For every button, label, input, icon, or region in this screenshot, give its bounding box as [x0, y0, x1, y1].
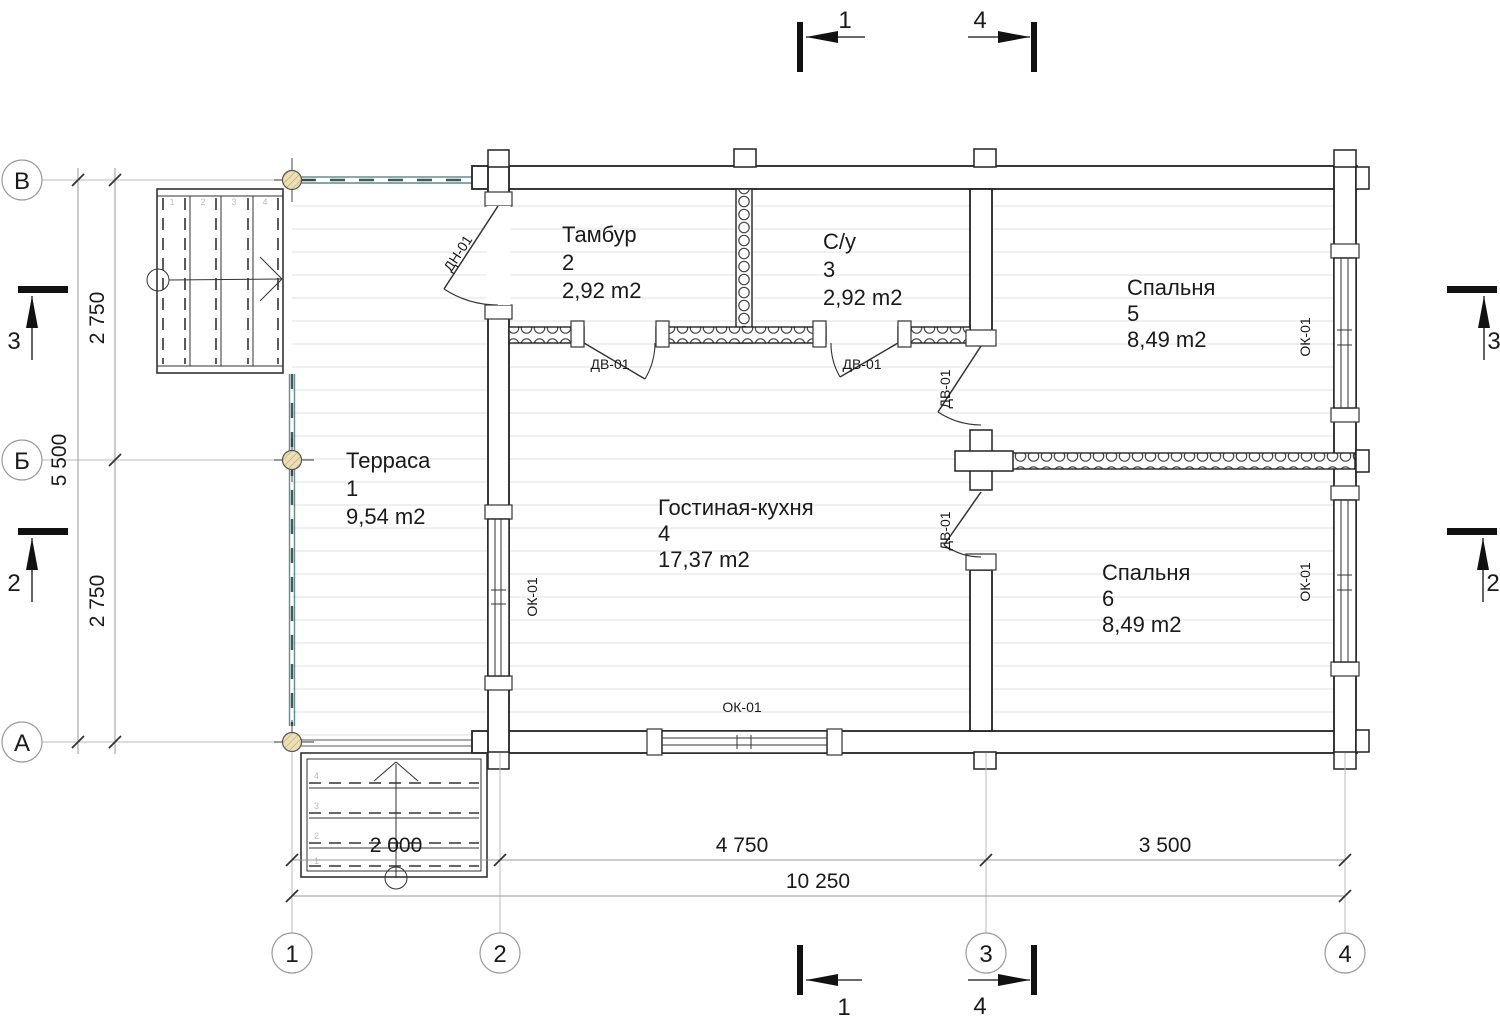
room-area: 8,49 m2: [1102, 612, 1182, 637]
window-terrace: [485, 505, 512, 690]
room-area: 8,49 m2: [1127, 327, 1207, 352]
dim-label: 4 750: [716, 834, 769, 857]
stairs-upper: 1 2 3 4: [147, 189, 283, 373]
section-marker-top-1: 1: [797, 7, 865, 72]
dimensions-left: 5 500 2 750 2 750: [48, 168, 121, 754]
floor-plan-drawing: 1 2 3 4 4 3 2 1: [0, 0, 1500, 1025]
axis-label-1: 1: [285, 941, 298, 968]
room-area: 2,92 m2: [562, 278, 642, 303]
stair-step-number: 3: [231, 197, 236, 207]
stair-step-number: 4: [314, 771, 319, 781]
room-area: 17,37 m2: [658, 547, 750, 572]
stair-step-number: 4: [262, 197, 267, 207]
window-tag: ОК-01: [722, 699, 761, 715]
dim-label: 2 750: [86, 292, 109, 345]
axis-label-4: 4: [1338, 941, 1351, 968]
partition-bedrooms: [1011, 453, 1355, 469]
room-number: 5: [1127, 301, 1139, 326]
section-label: 4: [973, 7, 986, 34]
wall-bottom: [472, 731, 1357, 753]
stair-step-number: 3: [314, 801, 319, 811]
entry-door-opening: [487, 206, 511, 305]
stair-step-number: 1: [314, 856, 319, 866]
window-tag: ОК-01: [524, 577, 540, 616]
room-name: Гостиная-кухня: [658, 495, 814, 520]
floor-plan-canvas: 1 2 3 4 4 3 2 1: [0, 0, 1500, 1025]
room-name: Тамбур: [562, 222, 637, 247]
section-label: 3: [1487, 328, 1500, 355]
section-marker-right-3: 3: [1447, 286, 1500, 360]
partition-hall-2: [656, 327, 826, 343]
door-tag: ДВ-01: [842, 356, 881, 372]
axis-label-3: 3: [979, 941, 992, 968]
section-marker-left-2: 2: [7, 528, 68, 602]
room-area: 2,92 m2: [823, 285, 903, 310]
dim-label: 10 250: [786, 870, 850, 893]
window-tag: ОК-01: [1297, 562, 1313, 601]
wall-top: [472, 166, 1357, 189]
dim-label: 3 500: [1139, 834, 1192, 857]
room-number: 3: [823, 257, 835, 282]
room-name: Спальня: [1102, 560, 1190, 585]
section-label: 1: [837, 994, 850, 1021]
section-marker-bottom-1: 1: [797, 945, 862, 1021]
room-name: Спальня: [1127, 275, 1215, 300]
axis-label-b: Б: [14, 448, 30, 475]
stair-step-number: 2: [314, 831, 319, 841]
wall-bedroom6-left: [970, 570, 992, 731]
door-tag: ДВ-01: [937, 369, 953, 408]
section-label: 4: [973, 993, 986, 1020]
section-label: 2: [7, 570, 20, 597]
axis-label-v: В: [14, 168, 30, 195]
room-number: 6: [1102, 586, 1114, 611]
section-marker-right-2: 2: [1447, 528, 1500, 602]
section-marker-left-3: 3: [7, 286, 68, 360]
section-label: 2: [1486, 570, 1499, 597]
wall-su-right: [970, 189, 992, 332]
axis-label-a: А: [14, 730, 30, 757]
stair-direction-arrow: [147, 257, 282, 301]
room-number: 2: [562, 250, 574, 275]
stair-step-number: 2: [200, 197, 205, 207]
partition-tambur-su: [736, 189, 752, 343]
section-label: 3: [7, 328, 20, 355]
dim-label: 2 000: [370, 834, 423, 857]
stair-step-number: 1: [169, 197, 174, 207]
window-tag: ОК-01: [1297, 317, 1313, 356]
axis-label-2: 2: [493, 941, 506, 968]
dim-label: 2 750: [86, 575, 109, 628]
room-name: С/у: [823, 229, 856, 254]
room-number: 1: [346, 476, 358, 501]
room-area: 9,54 m2: [346, 504, 426, 529]
door-tag: ДВ-01: [937, 511, 953, 550]
dimensions-bottom: 2 000 4 750 3 500 10 250: [286, 834, 1351, 902]
room-number: 4: [658, 521, 670, 546]
window-living: [647, 729, 842, 755]
stairs-lower: 4 3 2 1: [301, 753, 487, 889]
room-name: Терраса: [346, 448, 431, 473]
section-marker-top-4: 4: [968, 7, 1037, 72]
section-label: 1: [838, 7, 851, 34]
window-bedroom6: [1331, 486, 1359, 676]
window-bedroom5: [1331, 244, 1359, 422]
dim-label: 5 500: [48, 434, 71, 487]
door-tag: ДВ-01: [590, 356, 629, 372]
stair-direction-arrow: [374, 762, 418, 889]
